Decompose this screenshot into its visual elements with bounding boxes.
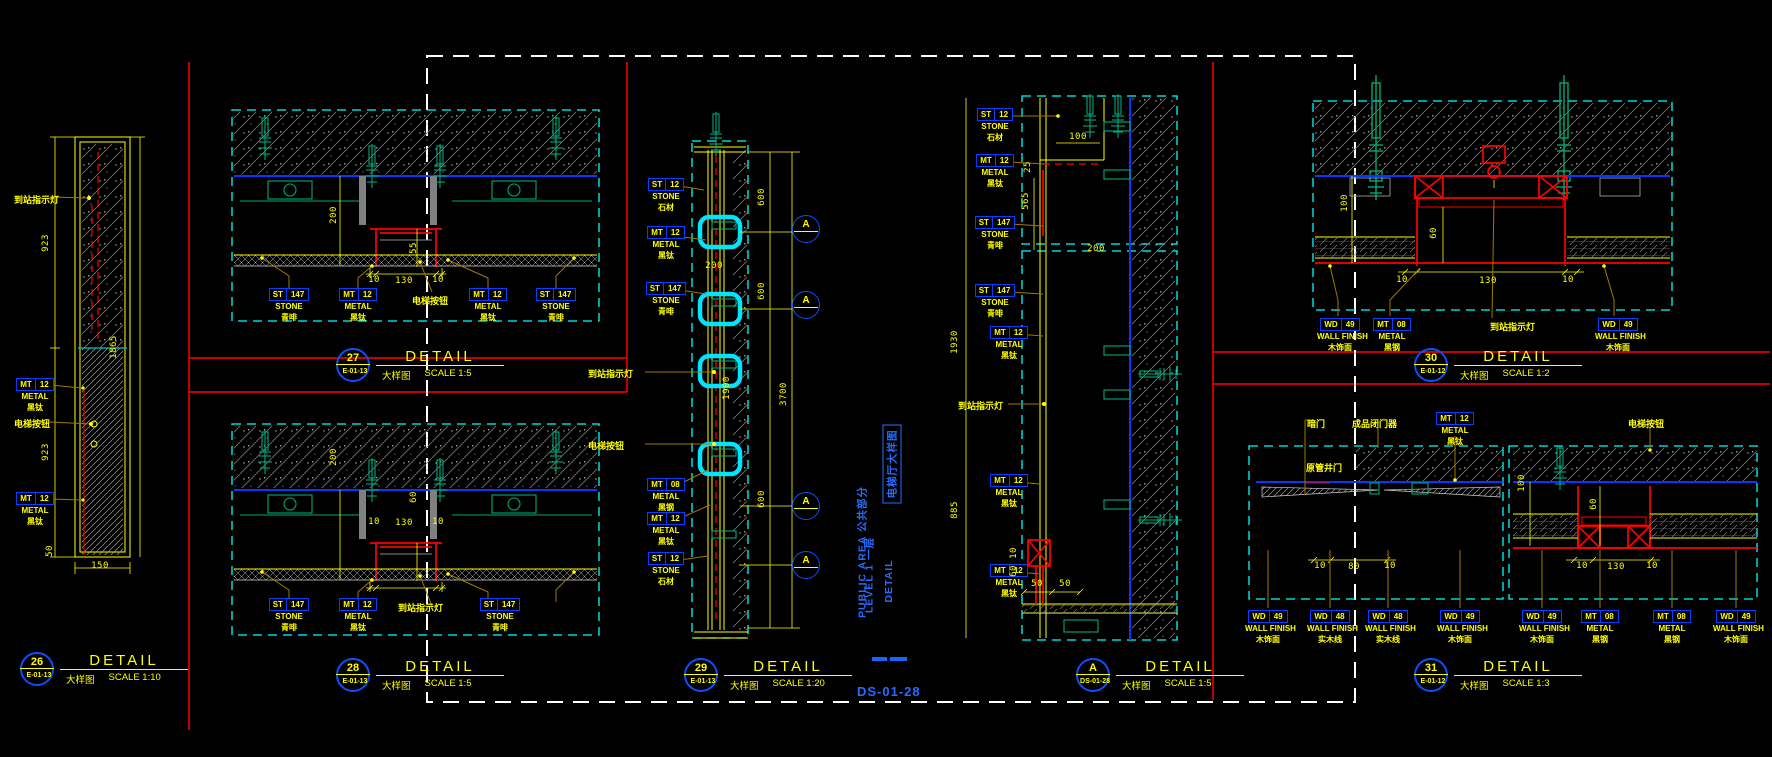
dimension: 923 (41, 443, 51, 461)
dimension: 80 (1348, 562, 1360, 572)
material-name: WALL FINISH (1519, 624, 1565, 633)
material-code-box: ST147 (975, 216, 1016, 229)
annotation-label: 电梯按钮 (1628, 417, 1664, 430)
detail-ref: E-01-13 (18, 672, 60, 679)
material-tag-mt-08: MT08METAL黑钢 (1577, 610, 1623, 645)
dimension: 50 (45, 545, 55, 557)
material-finish: 青啡 (972, 308, 1018, 319)
material-tag-st-147: ST147STONE青啡 (972, 284, 1018, 319)
material-tag-mt-12: MT12METAL黑钛 (643, 226, 689, 261)
titleblock-text: LEVEL 1 一层 (862, 537, 877, 613)
material-finish: 黑钛 (12, 516, 58, 527)
dimension: 10 (1646, 561, 1658, 571)
dimension: 600 (757, 188, 767, 206)
material-name: METAL (1577, 624, 1623, 633)
dimension: 100 (1517, 474, 1527, 492)
dimension: 923 (41, 234, 51, 252)
material-code-box: WD48 (1368, 610, 1407, 623)
material-finish: 木饰面 (1519, 634, 1565, 645)
detail-bubble: 30E-01-12 (1414, 348, 1448, 382)
material-tag-st-147: ST147STONE青啡 (643, 282, 689, 317)
material-finish: 青啡 (972, 240, 1018, 251)
material-tag-wd-49: WD49WALL FINISH木饰面 (1519, 610, 1565, 645)
material-code-box: MT12 (16, 378, 53, 391)
material-finish: 实木线 (1365, 634, 1411, 645)
annotation-label: 暗门 (1307, 417, 1325, 430)
detail-number: 27 (338, 352, 368, 364)
detail-bubble: 28E-01-13 (336, 658, 370, 692)
detail-ref: E-01-12 (1412, 678, 1454, 685)
annotation-label: 到站指示灯 (398, 601, 443, 614)
material-code-box: WD49 (1522, 610, 1561, 623)
detail-bubble: 27E-01-13 (336, 348, 370, 382)
detail-title-28: 28E-01-13DETAIL大样图SCALE 1:5 (336, 658, 504, 692)
material-finish: 黑钢 (1369, 342, 1415, 353)
dimension: 10 (1314, 561, 1326, 571)
dimension: 130 (1607, 562, 1625, 572)
dimension: 10 (1384, 561, 1396, 571)
material-name: METAL (12, 506, 58, 515)
material-code-box: WD49 (1598, 318, 1637, 331)
detail-title-sub: 大样图SCALE 1:20 (724, 676, 852, 692)
detail-title-26: 26E-01-13DETAIL大样图SCALE 1:10 (20, 652, 188, 686)
material-code-box: MT08 (1653, 610, 1690, 623)
material-code-box: WD48 (1310, 610, 1349, 623)
material-tag-mt-12: MT12METAL黑钛 (972, 154, 1018, 189)
annotation-label: 电梯按钮 (412, 294, 448, 307)
material-name: WALL FINISH (1307, 624, 1353, 633)
material-name: METAL (1432, 426, 1478, 435)
detail-bubble: ADS-01-28 (1076, 658, 1110, 692)
material-code-box: MT12 (339, 288, 376, 301)
material-finish: 实木线 (1307, 634, 1353, 645)
detail-title-sub: 大样图SCALE 1:2 (1454, 366, 1582, 382)
dimension: 60 (1589, 498, 1599, 510)
material-tag-mt-12: MT12METAL黑钛 (12, 492, 58, 527)
material-code-box: MT08 (1373, 318, 1410, 331)
dimension: 50 (1059, 579, 1071, 589)
detail-number: 26 (22, 656, 52, 668)
dimension: 10 (1396, 275, 1408, 285)
dimension: 565 (1021, 192, 1031, 210)
annotation-label: 电梯按钮 (588, 439, 624, 452)
material-finish: 青啡 (477, 622, 523, 633)
detail-title-27: 27E-01-13DETAIL大样图SCALE 1:5 (336, 348, 504, 382)
material-code-box: ST147 (480, 598, 521, 611)
detail-title-name: DETAIL (376, 348, 504, 366)
material-finish: 木饰面 (1317, 342, 1363, 353)
material-tag-mt-12: MT12METAL黑钛 (335, 598, 381, 633)
material-code-box: MT12 (647, 512, 684, 525)
material-finish: 黑钛 (986, 350, 1032, 361)
detail-title-text: DETAIL大样图SCALE 1:5 (376, 658, 504, 692)
material-finish: 黑钛 (335, 622, 381, 633)
material-name: WALL FINISH (1365, 624, 1411, 633)
material-code-box: WD49 (1440, 610, 1479, 623)
material-name: METAL (335, 612, 381, 621)
detail-title-29: 29E-01-13DETAIL大样图SCALE 1:20 (684, 658, 852, 692)
material-tag-mt-12: MT12METAL黑钛 (335, 288, 381, 323)
material-name: STONE (643, 296, 689, 305)
dimension: 10 (1009, 547, 1019, 559)
dimension: 1930 (950, 330, 960, 354)
material-tag-wd-48: WD48WALL FINISH实木线 (1307, 610, 1353, 645)
material-name: METAL (986, 340, 1032, 349)
material-tag-st-12: ST12STONE石材 (643, 178, 689, 213)
annotation-label: 到站指示灯 (14, 193, 59, 206)
dimension: 3700 (779, 382, 789, 406)
section-ref-circle: A (792, 551, 820, 579)
dimension: 10 (368, 275, 380, 285)
material-finish: 黑钛 (986, 588, 1032, 599)
detail-bubble: 31E-01-12 (1414, 658, 1448, 692)
material-code-box: WD49 (1248, 610, 1287, 623)
material-finish: 黑钢 (1577, 634, 1623, 645)
material-code-box: WD49 (1716, 610, 1755, 623)
detail-title-text: DETAIL大样图SCALE 1:3 (1454, 658, 1582, 692)
material-tag-st-12: ST12STONE石材 (643, 552, 689, 587)
material-name: METAL (643, 240, 689, 249)
material-tag-wd-49: WD49WALL FINISH木饰面 (1317, 318, 1363, 353)
material-tag-mt-08: MT08METAL黑钢 (643, 478, 689, 513)
material-tag-wd-49: WD49WALL FINISH木饰面 (1713, 610, 1759, 645)
material-finish: 石材 (972, 132, 1018, 143)
material-code-box: ST147 (646, 282, 687, 295)
material-name: METAL (972, 168, 1018, 177)
material-code-box: ST12 (977, 108, 1013, 121)
annotation-label: 原管井门 (1306, 461, 1342, 474)
detail-number: 28 (338, 662, 368, 674)
material-name: WALL FINISH (1317, 332, 1363, 341)
material-code-box: ST12 (648, 178, 684, 191)
material-name: METAL (12, 392, 58, 401)
material-tag-wd-49: WD49WALL FINISH木饰面 (1245, 610, 1291, 645)
material-finish: 黑钛 (986, 498, 1032, 509)
annotation-label: 电梯按钮 (14, 417, 50, 430)
material-finish: 木饰面 (1713, 634, 1759, 645)
material-name: METAL (1649, 624, 1695, 633)
material-tag-mt-12: MT12METAL黑钛 (643, 512, 689, 547)
dimension: 600 (757, 490, 767, 508)
detail-number: 31 (1416, 662, 1446, 674)
detail-title-name: DETAIL (1116, 658, 1244, 676)
detail-number: 29 (686, 662, 716, 674)
material-name: METAL (465, 302, 511, 311)
material-tag-wd-48: WD48WALL FINISH实木线 (1365, 610, 1411, 645)
material-tag-mt-12: MT12METAL黑钛 (465, 288, 511, 323)
material-finish: 青啡 (266, 312, 312, 323)
detail-title-name: DETAIL (376, 658, 504, 676)
material-tag-mt-12: MT12METAL黑钛 (1432, 412, 1478, 447)
material-name: STONE (972, 298, 1018, 307)
material-tag-mt-12: MT12METAL黑钛 (986, 326, 1032, 361)
material-name: STONE (477, 612, 523, 621)
material-finish: 石材 (643, 202, 689, 213)
material-tag-st-12: ST12STONE石材 (972, 108, 1018, 143)
detail-title-text: DETAIL大样图SCALE 1:5 (376, 348, 504, 382)
material-code-box: MT08 (1581, 610, 1618, 623)
dimension: 200 (1087, 244, 1105, 254)
material-code-box: ST147 (269, 288, 310, 301)
titleblock-text: 电梯厅大样图 (883, 425, 902, 504)
material-tag-mt-12: MT12METAL黑钛 (12, 378, 58, 413)
detail-bubble: 29E-01-13 (684, 658, 718, 692)
material-name: STONE (972, 230, 1018, 239)
annotation-label: 到站指示灯 (1490, 320, 1535, 333)
material-name: STONE (266, 302, 312, 311)
material-tag-st-147: ST147STONE青啡 (972, 216, 1018, 251)
material-tag-mt-12: MT12METAL黑钛 (986, 474, 1032, 509)
detail-ref: E-01-13 (682, 678, 724, 685)
material-tag-st-147: ST147STONE青啡 (266, 598, 312, 633)
material-name: METAL (1369, 332, 1415, 341)
section-ref-circle: A (792, 291, 820, 319)
material-code-box: MT12 (647, 226, 684, 239)
detail-title-name: DETAIL (724, 658, 852, 676)
detail-title-sub: 大样图SCALE 1:5 (1116, 676, 1244, 692)
material-finish: 黑钛 (643, 250, 689, 261)
material-name: STONE (643, 566, 689, 575)
detail-title-31: 31E-01-12DETAIL大样图SCALE 1:3 (1414, 658, 1582, 692)
material-tag-wd-49: WD49WALL FINISH木饰面 (1437, 610, 1483, 645)
material-tag-wd-49: WD49WALL FINISH木饰面 (1595, 318, 1641, 353)
detail-title-text: DETAIL大样图SCALE 1:2 (1454, 348, 1582, 382)
material-tag-st-147: ST147STONE青啡 (533, 288, 579, 323)
annotation-label: 到站指示灯 (958, 399, 1003, 412)
material-name: WALL FINISH (1245, 624, 1291, 633)
detail-ref: E-01-12 (1412, 368, 1454, 375)
sheet-number: DS-01-28 (857, 684, 921, 699)
material-finish: 青啡 (266, 622, 312, 633)
material-code-box: MT12 (16, 492, 53, 505)
dimension: 130 (395, 276, 413, 286)
material-code-box: MT12 (1436, 412, 1473, 425)
dimension: 885 (950, 501, 960, 519)
dimension: 55 (409, 242, 419, 254)
detail-number: A (1078, 662, 1108, 674)
dimension: 10 (1562, 275, 1574, 285)
dimension: 130 (1479, 276, 1497, 286)
detail-title-text: DETAIL大样图SCALE 1:5 (1116, 658, 1244, 692)
material-code-box: MT12 (976, 154, 1013, 167)
material-finish: 黑钛 (643, 536, 689, 547)
material-name: STONE (533, 302, 579, 311)
section-ref-circle: A (792, 492, 820, 520)
detail-ref: DS-01-28 (1074, 678, 1116, 685)
detail-bubble: 26E-01-13 (20, 652, 54, 686)
material-code-box: WD49 (1320, 318, 1359, 331)
detail-title-sub: 大样图SCALE 1:10 (60, 670, 188, 686)
material-finish: 黑钛 (465, 312, 511, 323)
annotation-layer: DS-01-28 MT12METAL黑钛MT12METAL黑钛ST147STON… (0, 0, 1772, 757)
detail-ref: E-01-13 (334, 678, 376, 685)
dimension: 50 (1031, 579, 1043, 589)
material-tag-st-147: ST147STONE青啡 (477, 598, 523, 633)
material-name: METAL (643, 526, 689, 535)
dimension: 60 (1429, 227, 1439, 239)
section-ref-circle: A (792, 215, 820, 243)
detail-title-30: 30E-01-12DETAIL大样图SCALE 1:2 (1414, 348, 1582, 382)
material-finish: 青啡 (533, 312, 579, 323)
material-name: METAL (643, 492, 689, 501)
detail-title-sub: 大样图SCALE 1:3 (1454, 676, 1582, 692)
material-finish: 木饰面 (1437, 634, 1483, 645)
dimension: 100 (1340, 194, 1350, 212)
material-code-box: ST147 (536, 288, 577, 301)
material-tag-mt-08: MT08METAL黑钢 (1649, 610, 1695, 645)
material-name: STONE (972, 122, 1018, 131)
detail-title-name: DETAIL (1454, 348, 1582, 366)
annotation-label: 成品闭门器 (1352, 417, 1397, 430)
detail-title-sub: 大样图SCALE 1:5 (376, 676, 504, 692)
material-finish: 木饰面 (1245, 634, 1291, 645)
dimension: 150 (91, 561, 109, 571)
detail-title-text: DETAIL大样图SCALE 1:10 (60, 652, 188, 686)
detail-title-a: ADS-01-28DETAIL大样图SCALE 1:5 (1076, 658, 1244, 692)
detail-title-text: DETAIL大样图SCALE 1:20 (724, 658, 852, 692)
material-finish: 黑钛 (972, 178, 1018, 189)
cad-canvas: DS-01-28 MT12METAL黑钛MT12METAL黑钛ST147STON… (0, 0, 1772, 757)
dimension: 200 (705, 261, 723, 271)
material-finish: 木饰面 (1595, 342, 1641, 353)
material-name: STONE (266, 612, 312, 621)
dimension: 25 (1023, 161, 1033, 173)
material-finish: 黑钛 (335, 312, 381, 323)
dimension: 10 (432, 517, 444, 527)
detail-number: 30 (1416, 352, 1446, 364)
material-name: STONE (643, 192, 689, 201)
material-finish: 石材 (643, 576, 689, 587)
material-tag-st-147: ST147STONE青啡 (266, 288, 312, 323)
dimension: 600 (757, 282, 767, 300)
material-code-box: MT12 (990, 326, 1027, 339)
dimension: 10 (1576, 561, 1588, 571)
material-finish: 黑钛 (12, 402, 58, 413)
material-code-box: MT12 (339, 598, 376, 611)
material-name: METAL (986, 488, 1032, 497)
material-finish: 青啡 (643, 306, 689, 317)
dimension: 10 (368, 517, 380, 527)
dimension: 60 (409, 491, 419, 503)
dimension: 1900 (722, 376, 732, 400)
material-name: WALL FINISH (1437, 624, 1483, 633)
annotation-label: 到站指示灯 (588, 367, 633, 380)
material-code-box: MT12 (469, 288, 506, 301)
detail-ref: E-01-13 (334, 368, 376, 375)
dimension: 200 (329, 448, 339, 466)
material-tag-mt-08: MT08METAL黑钢 (1369, 318, 1415, 353)
dimension: 10 (432, 275, 444, 285)
titleblock-text: DETAIL (883, 559, 895, 602)
material-code-box: ST147 (269, 598, 310, 611)
dimension: 60 (1009, 565, 1019, 577)
material-name: WALL FINISH (1595, 332, 1641, 341)
material-code-box: ST147 (975, 284, 1016, 297)
material-name: METAL (986, 578, 1032, 587)
material-code-box: ST12 (648, 552, 684, 565)
material-name: WALL FINISH (1713, 624, 1759, 633)
dimension: 1865 (109, 335, 119, 359)
material-finish: 黑钛 (1432, 436, 1478, 447)
dimension: 130 (395, 518, 413, 528)
detail-title-sub: 大样图SCALE 1:5 (376, 366, 504, 382)
dimension: 100 (1069, 132, 1087, 142)
material-code-box: MT08 (647, 478, 684, 491)
detail-title-name: DETAIL (60, 652, 188, 670)
material-finish: 黑钢 (1649, 634, 1695, 645)
dimension: 200 (329, 206, 339, 224)
material-code-box: MT12 (990, 474, 1027, 487)
material-name: METAL (335, 302, 381, 311)
detail-title-name: DETAIL (1454, 658, 1582, 676)
